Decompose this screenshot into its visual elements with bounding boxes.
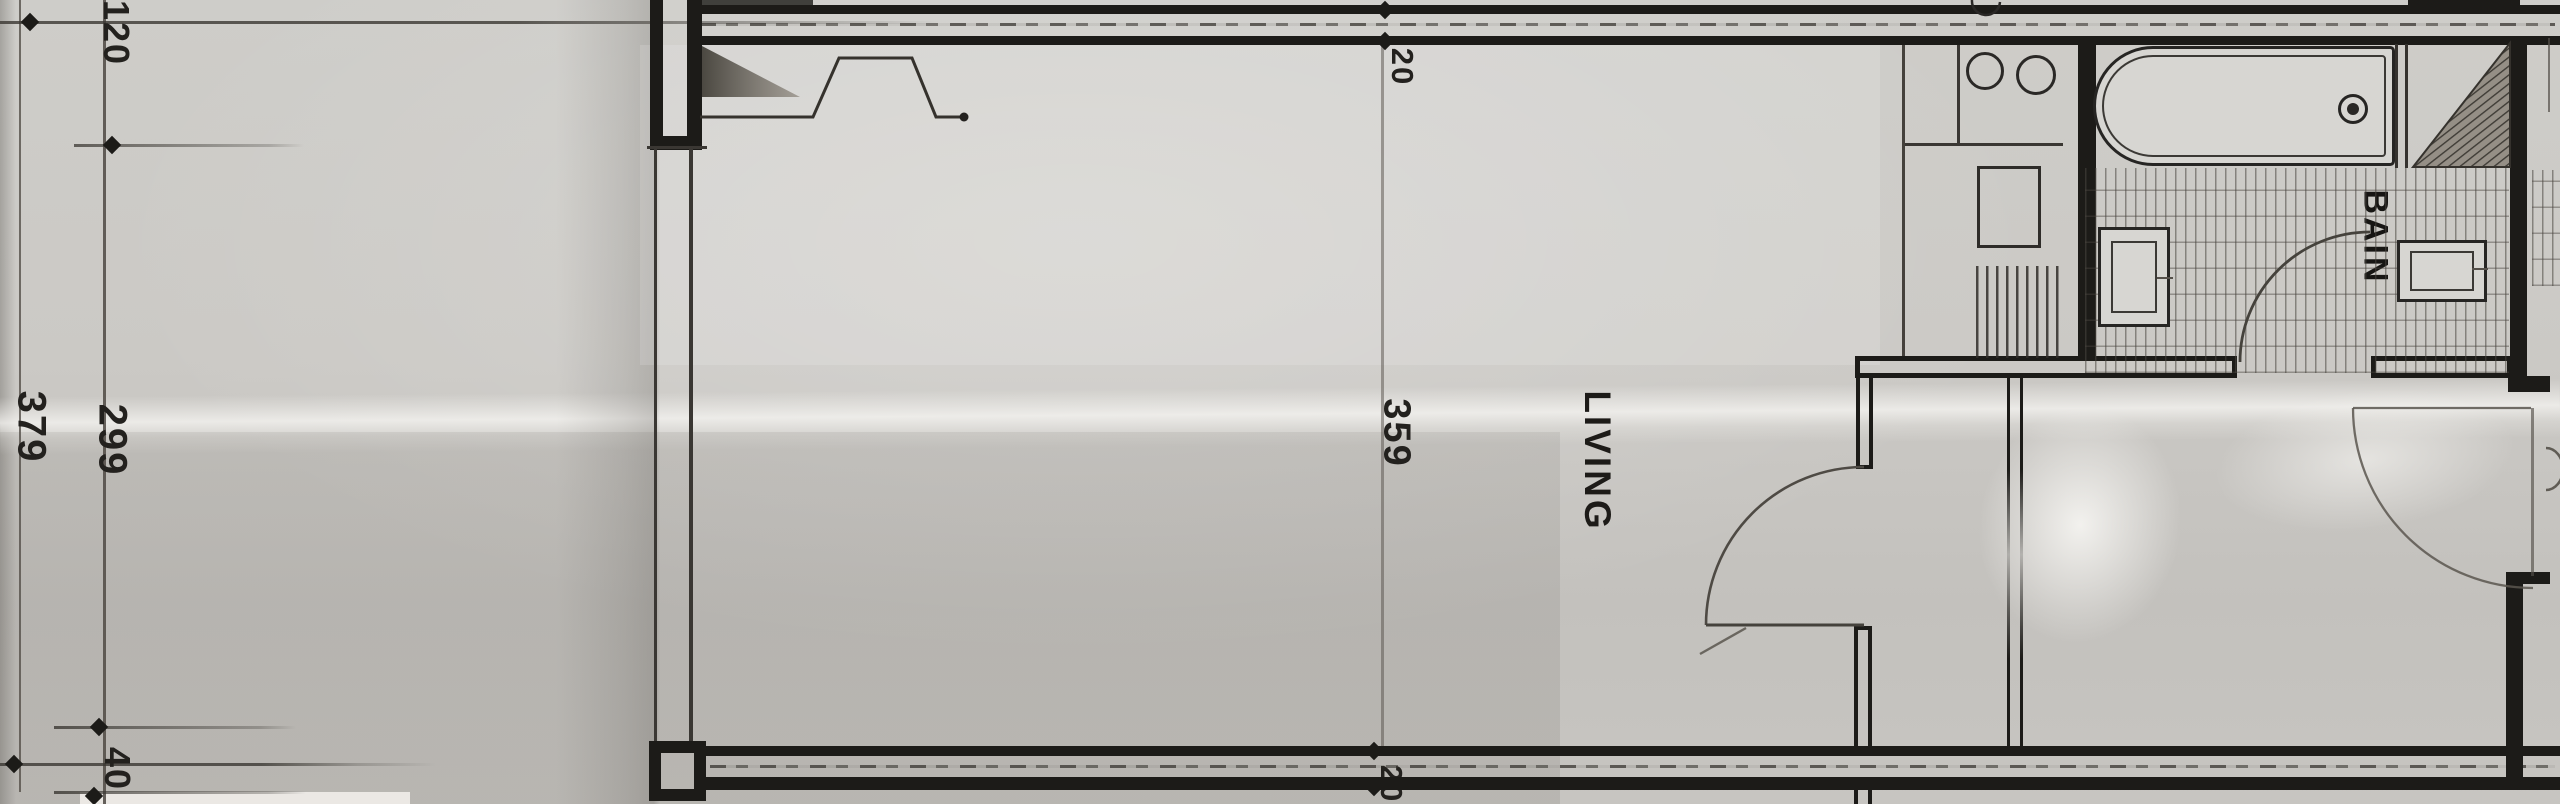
floor-plan-photo: 120 299 379 40 20 359 20 LIVING BAIN xyxy=(0,0,2560,804)
pencil-c-mark xyxy=(2546,448,2560,490)
stroke-overlay xyxy=(0,0,2560,804)
trapezoid-end-dot xyxy=(960,113,969,122)
neighbor-sink-arc-1 xyxy=(1972,0,2000,15)
living-door-pencil-tail xyxy=(1700,628,1746,654)
hall-door-arc xyxy=(2353,408,2533,588)
living-door-arc xyxy=(1706,467,1864,625)
bath-door-arc xyxy=(2240,232,2370,362)
living-shaded-triangle xyxy=(702,46,800,97)
bath-hatched-duct-triangle xyxy=(2413,43,2510,167)
